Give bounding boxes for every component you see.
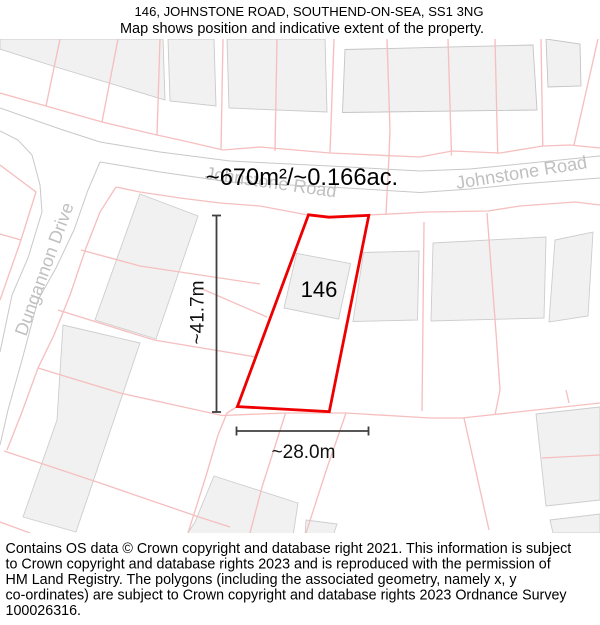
svg-text:co-ordinates) are subject to C: co-ordinates) are subject to Crown copyr… xyxy=(6,588,568,604)
svg-text:~670m²/~0.166ac.: ~670m²/~0.166ac. xyxy=(206,165,398,191)
svg-text:~41.7m: ~41.7m xyxy=(188,281,209,345)
svg-text:HM Land Registry. The polygons: HM Land Registry. The polygons (includin… xyxy=(6,572,518,588)
svg-text:Contains OS data © Crown copyr: Contains OS data © Crown copyright and d… xyxy=(6,541,572,557)
svg-text:~28.0m: ~28.0m xyxy=(272,442,336,463)
svg-text:100026316.: 100026316. xyxy=(6,603,82,619)
svg-text:146, JOHNSTONE ROAD, SOUTHEND-: 146, JOHNSTONE ROAD, SOUTHEND-ON-SEA, SS… xyxy=(135,4,484,19)
svg-text:to Crown copyright and databas: to Crown copyright and database rights 2… xyxy=(6,557,551,573)
svg-text:146: 146 xyxy=(301,277,338,302)
svg-text:Map shows position and indicat: Map shows position and indicative extent… xyxy=(120,21,484,37)
